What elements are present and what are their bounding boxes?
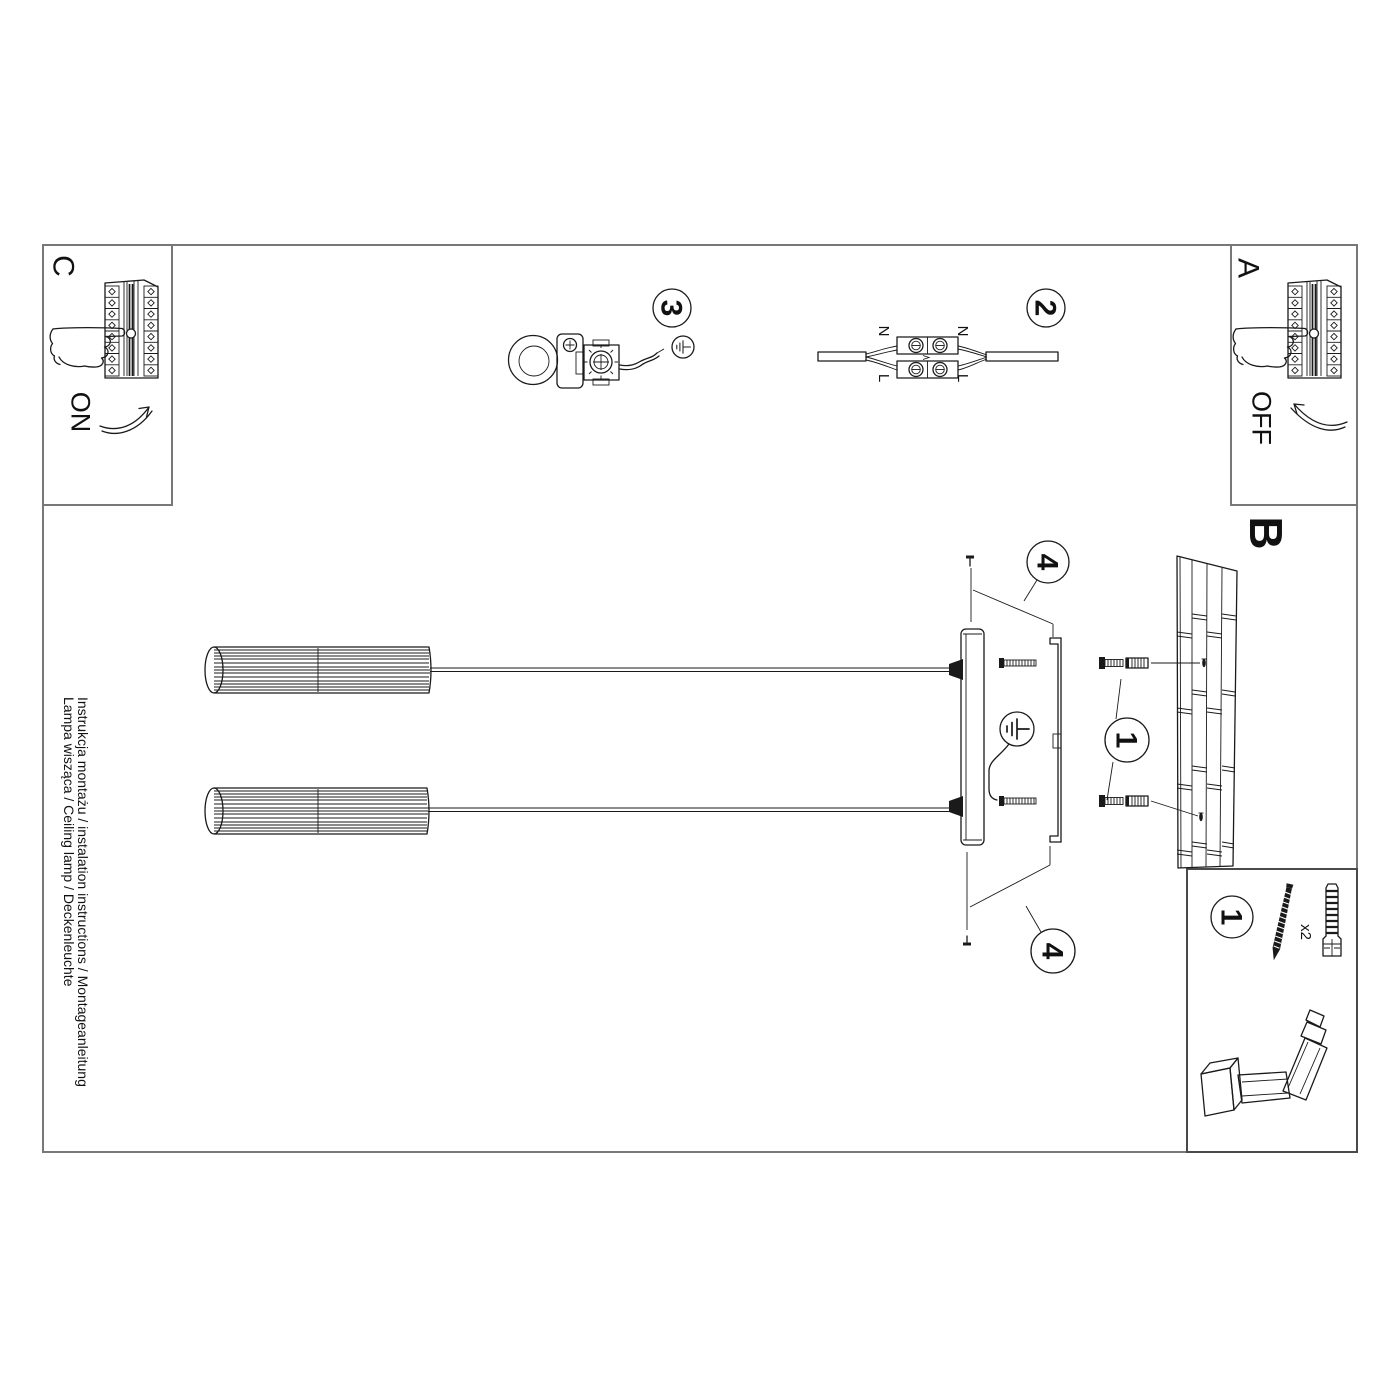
- ceiling-wall: [1177, 556, 1237, 868]
- wire-split: [866, 346, 897, 370]
- machine-screw-bottom: [999, 796, 1036, 806]
- wire-merge: [958, 346, 987, 370]
- hook-ring: [509, 336, 558, 385]
- fuse-switch-panel: [1233, 280, 1341, 378]
- suspension-cords: [428, 668, 950, 812]
- step-3-number: 3: [655, 300, 688, 317]
- step-1-number: 1: [1110, 732, 1143, 749]
- step-3-hook-detail: 3: [509, 289, 695, 388]
- terminal-screw-icon: [584, 345, 618, 380]
- section-c-label: C: [47, 255, 80, 277]
- leader-line-bottom: [970, 846, 1050, 907]
- step-2-number: 2: [1029, 300, 1062, 317]
- title-line-2: Lampa wisząca / Ceiling lamp / Deckenleu…: [61, 697, 77, 987]
- instruction-sheet: C ON A OFF 3: [0, 0, 1400, 1400]
- terminal-label-l-right: L: [954, 374, 971, 382]
- cover-pin-top: [966, 557, 974, 622]
- instruction-drawing: C ON A OFF 3: [0, 0, 1400, 1400]
- parts-step-number: 1: [1215, 909, 1248, 926]
- parts-list: 1 x2: [1201, 883, 1341, 1116]
- bracket-screw-icon: [564, 339, 577, 352]
- parts-box: [1187, 869, 1357, 1152]
- step-4-number-bottom: 4: [1036, 943, 1069, 960]
- step-4-leader-bottom: [1026, 906, 1041, 932]
- supply-cable: [818, 352, 866, 361]
- step-4-number-top: 4: [1031, 554, 1064, 571]
- off-label: OFF: [1247, 391, 1277, 445]
- mounting-screw-icon: [1270, 883, 1294, 961]
- canopy: [949, 629, 984, 845]
- section-a-box: [1231, 245, 1357, 505]
- terminal-label-l-left: L: [875, 374, 892, 382]
- wall-plug-top: [1126, 658, 1148, 668]
- ground-wire: [620, 349, 664, 370]
- ground-symbol-icon: [1000, 712, 1034, 746]
- cover-pin-bottom: [963, 852, 971, 944]
- terminal-label-n-left: N: [875, 326, 892, 337]
- fuse-switch-panel: [50, 280, 158, 378]
- ground-symbol-icon: [672, 336, 694, 358]
- step-4-leader-top: [1024, 580, 1037, 601]
- cord-grip-top: [949, 659, 963, 680]
- section-a-label: A: [1232, 258, 1265, 278]
- lamp-shade-top: [205, 647, 431, 693]
- leader-line-top: [973, 590, 1053, 637]
- section-c: C ON: [47, 255, 159, 433]
- step-2-wiring-detail: 2 N L N L: [818, 289, 1065, 382]
- on-label: ON: [66, 392, 96, 433]
- section-b: B: [205, 516, 1292, 973]
- rotate-clockwise-arrow-icon: [100, 407, 152, 433]
- cord-grip-bottom: [949, 796, 963, 817]
- wall-plug-bottom: [1126, 796, 1148, 806]
- mounting-plate: [1050, 638, 1061, 842]
- wall-plug-icon: [1323, 884, 1341, 956]
- section-b-label: B: [1240, 516, 1292, 549]
- drill-hole-screw-bottom: [1199, 813, 1204, 821]
- wall-screw-bottom: [1099, 795, 1198, 816]
- lamp-shade-bottom: [205, 788, 429, 834]
- lamp-cable: [986, 352, 1058, 361]
- screw-quantity-label: x2: [1297, 924, 1314, 940]
- machine-screw-top: [999, 658, 1036, 668]
- terminal-label-n-right: N: [954, 326, 971, 337]
- rotate-counterclockwise-arrow-icon: [1291, 404, 1347, 430]
- title-block: Instrukcja montażu / instalation instruc…: [61, 697, 91, 1087]
- section-a: A OFF: [1232, 258, 1348, 445]
- sheet-border: [43, 245, 1357, 1152]
- drill-hole-screw-top: [1202, 659, 1207, 667]
- wall-screw-top: [1099, 657, 1200, 669]
- ground-wire: [989, 744, 1009, 800]
- power-drill-icon: [1201, 1010, 1327, 1116]
